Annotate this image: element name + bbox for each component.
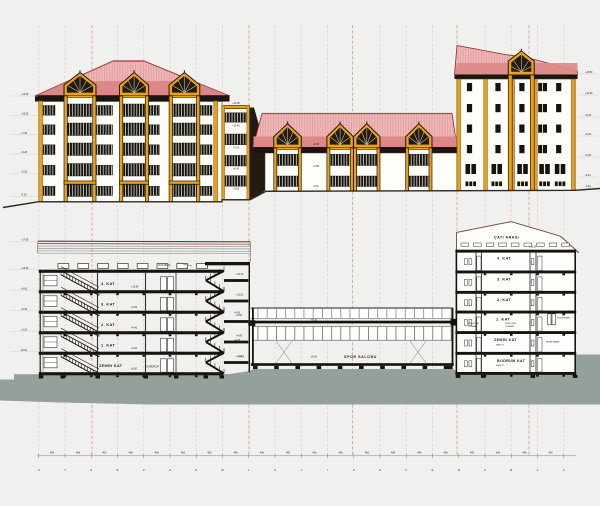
svg-text:+16.30: +16.30 [529,247,537,249]
svg-text:400: 400 [365,452,370,455]
svg-text:%33 MEYİL: %33 MEYİL [158,264,171,267]
svg-text:400: 400 [391,452,396,455]
svg-text:+6.30: +6.30 [313,143,320,146]
svg-text:+9.60: +9.60 [21,287,28,290]
svg-text:E: E [432,468,434,472]
svg-text:+9.20: +9.20 [233,147,240,150]
svg-text:+6.40: +6.40 [21,308,28,311]
svg-text:400: 400 [286,452,291,455]
svg-text:+13.30: +13.30 [232,102,240,105]
svg-text:+5.20: +5.20 [21,151,28,154]
svg-text:3. KAT: 3. KAT [497,277,511,281]
svg-text:±0.00: ±0.00 [131,367,138,370]
svg-text:+15.80: +15.80 [585,71,593,74]
svg-text:BODRUM KAT: BODRUM KAT [497,359,526,363]
svg-text:R: R [117,468,119,472]
svg-text:HİZMETHANE: HİZMETHANE [546,341,560,344]
svg-text:1. KAT: 1. KAT [496,318,510,322]
svg-text:-0.20: -0.20 [585,174,591,177]
svg-text:+10.60: +10.60 [21,113,29,116]
svg-text:+6.20: +6.20 [585,133,592,136]
svg-text:+3.20: +3.20 [21,328,28,331]
svg-text:400: 400 [417,452,422,455]
svg-text:MESCİT: MESCİT [496,364,505,367]
svg-text:+9.60: +9.60 [131,306,138,309]
svg-text:400: 400 [50,452,55,455]
svg-text:1. KAT: 1. KAT [101,343,115,347]
svg-text:SPOR SALONU: SPOR SALONU [344,355,377,359]
svg-text:400: 400 [76,452,81,455]
svg-text:+17.05: +17.05 [21,239,29,242]
svg-text:O: O [169,468,171,472]
svg-text:4. KAT: 4. KAT [497,257,511,261]
svg-text:400: 400 [549,452,554,455]
svg-text:2. KAT: 2. KAT [497,298,511,302]
svg-text:+3.00: +3.00 [585,154,592,157]
svg-text:P: P [143,468,145,472]
svg-text:D: D [458,468,460,472]
svg-text:+2.95: +2.95 [313,165,320,168]
svg-text:MESCİT: MESCİT [496,344,505,347]
svg-text:400: 400 [181,452,186,455]
svg-text:4. KAT: 4. KAT [101,282,115,286]
svg-text:+12.40: +12.40 [232,125,240,128]
svg-text:-0.20: -0.20 [21,194,27,197]
svg-text:+6.00: +6.00 [233,168,240,171]
svg-text:+8.00: +8.00 [236,314,243,317]
svg-text:KÜTÜPHANE: KÜTÜPHANE [557,317,570,320]
svg-text:400: 400 [444,452,449,455]
svg-text:400: 400 [339,452,344,455]
svg-text:+8.10: +8.10 [311,319,318,322]
svg-text:N: N [195,468,197,472]
svg-text:H: H [353,468,355,472]
svg-text:±0.00: ±0.00 [311,356,318,359]
svg-text:400: 400 [260,452,265,455]
svg-text:LOJMANI: LOJMANI [468,325,477,328]
svg-text:400: 400 [496,452,501,455]
svg-text:+12.80: +12.80 [131,285,139,288]
svg-text:+7.90: +7.90 [21,132,28,135]
svg-text:+13.30: +13.30 [21,93,29,96]
svg-text:A: A [537,468,539,472]
svg-text:C: C [484,468,486,472]
svg-text:ZEMİN KAT: ZEMİN KAT [494,338,517,342]
svg-text:400: 400 [234,452,239,455]
svg-text:B: B [510,468,512,472]
svg-text:400: 400 [129,452,134,455]
svg-text:GARDROP: GARDROP [146,365,159,369]
svg-text:400: 400 [522,452,527,455]
svg-text:+14.40: +14.40 [236,273,244,276]
svg-text:+12.60: +12.60 [585,92,593,95]
svg-text:ZEMİN KAT: ZEMİN KAT [99,363,123,368]
svg-text:-0.05: -0.05 [313,185,319,188]
svg-text:+11.20: +11.20 [236,294,244,297]
svg-text:±0.00: ±0.00 [21,349,28,352]
svg-text:S: S [90,468,92,472]
svg-text:+12.80: +12.80 [21,267,29,270]
svg-text:PERSONEL: PERSONEL [505,323,517,325]
svg-text:+4.80: +4.80 [236,335,243,338]
svg-text:400: 400 [470,452,475,455]
svg-text:+0.45: +0.45 [238,356,245,359]
svg-text:-1.20: -1.20 [585,185,591,188]
svg-text:2. KAT: 2. KAT [101,323,115,327]
svg-text:400: 400 [207,452,212,455]
svg-text:M: M [221,468,223,472]
svg-text:+9.90: +9.90 [234,312,241,315]
svg-text:+2.50: +2.50 [21,171,28,174]
svg-text:ÇATI ARASI: ÇATI ARASI [494,236,519,240]
svg-text:+4.05: +4.05 [234,339,241,342]
svg-text:3. KAT: 3. KAT [101,302,115,306]
svg-text:+9.40: +9.40 [585,114,592,117]
svg-text:PERSONEL: PERSONEL [468,323,480,325]
svg-text:U: U [38,468,40,472]
svg-text:400: 400 [312,452,317,455]
svg-text:400: 400 [102,452,107,455]
svg-text:+6.40: +6.40 [131,326,138,329]
svg-text:+3.20: +3.20 [131,347,138,350]
svg-text:+2.80: +2.80 [233,188,240,191]
svg-text:LOJMANI: LOJMANI [505,325,514,328]
svg-text:G: G [379,468,381,472]
svg-text:400: 400 [155,452,160,455]
svg-text:K: K [274,468,276,472]
